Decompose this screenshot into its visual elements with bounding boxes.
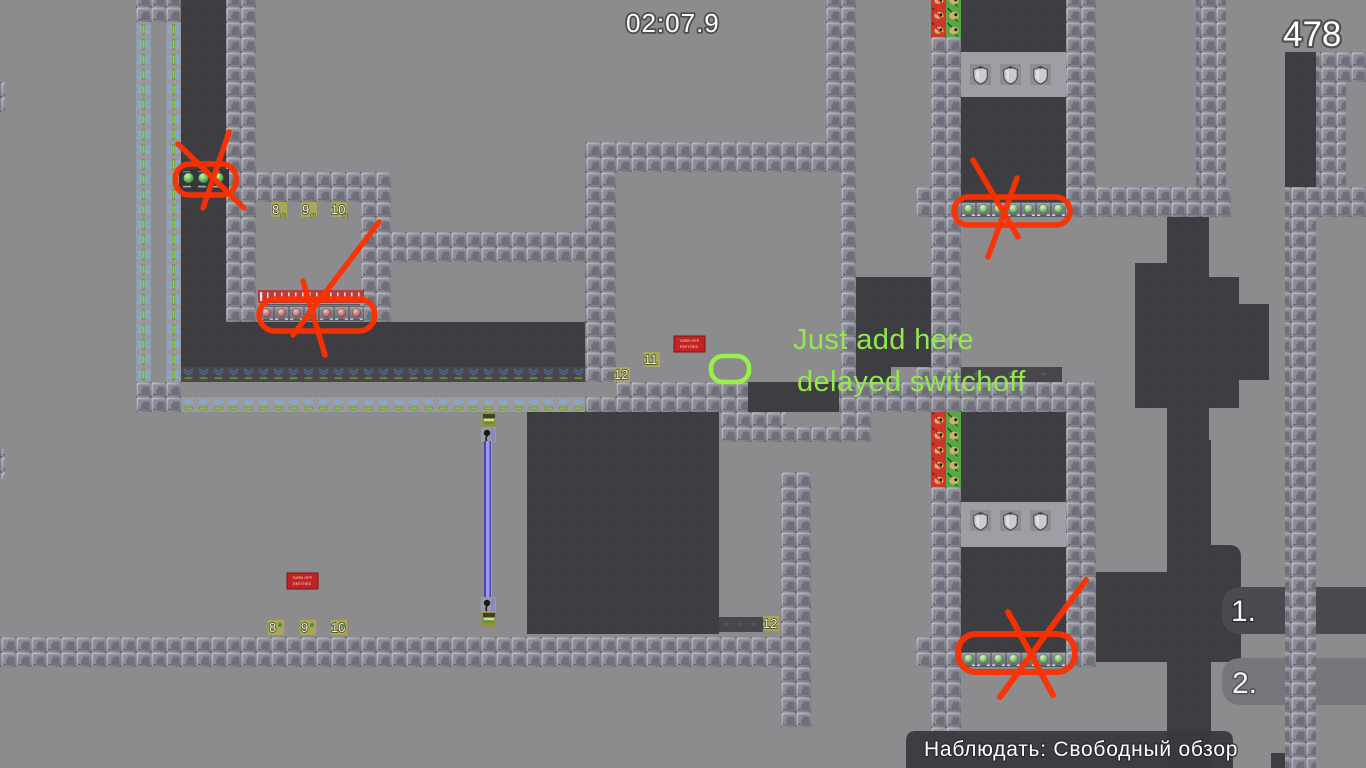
svg-text:Just add here: Just add here (793, 324, 974, 356)
svg-text:delayed switchoff: delayed switchoff (797, 366, 1026, 398)
svg-text:TURN OFF: TURN OFF (679, 338, 700, 343)
svg-text:12: 12 (614, 367, 628, 382)
svg-text:1.: 1. (1231, 595, 1256, 628)
svg-text:ENTITIES: ENTITIES (293, 581, 311, 586)
svg-text:12: 12 (763, 616, 777, 631)
svg-text:TURN OFF: TURN OFF (292, 575, 313, 580)
svg-text:8: 8 (269, 620, 276, 635)
svg-text:02:07.9: 02:07.9 (626, 8, 720, 38)
svg-text:9: 9 (302, 202, 309, 217)
svg-text:(7): (7) (342, 213, 348, 219)
svg-text:Наблюдать: Свободный обзор: Наблюдать: Свободный обзор (924, 738, 1238, 761)
svg-text:478: 478 (1283, 15, 1341, 54)
svg-text:ENTITIES: ENTITIES (680, 344, 698, 349)
svg-text:(7): (7) (280, 213, 286, 219)
svg-text:(7): (7) (310, 213, 316, 219)
svg-text:8: 8 (272, 202, 279, 217)
svg-text:2.: 2. (1232, 667, 1257, 700)
svg-text:9: 9 (301, 620, 308, 635)
svg-text:11: 11 (644, 352, 658, 367)
